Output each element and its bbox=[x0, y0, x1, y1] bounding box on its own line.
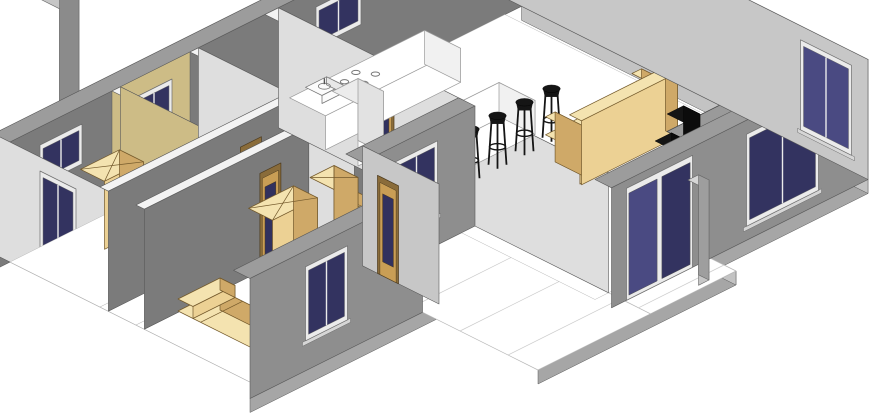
floor-plan-render bbox=[0, 0, 870, 420]
terrace-door bbox=[378, 175, 399, 283]
floor-plan-screenshot bbox=[0, 0, 870, 420]
